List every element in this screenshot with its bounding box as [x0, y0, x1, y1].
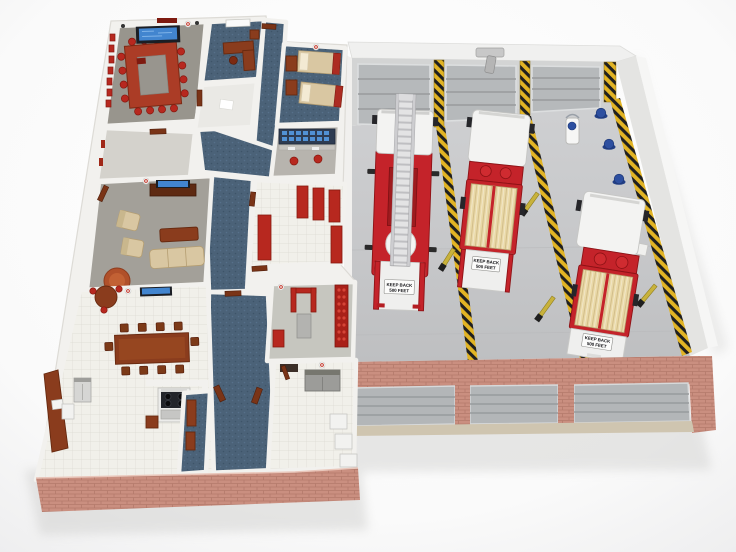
- door: [252, 265, 267, 271]
- hazard-post: [520, 61, 530, 118]
- weight-bench: [297, 314, 311, 338]
- mirror: [433, 117, 438, 126]
- bed: [299, 82, 343, 107]
- keep-back-sign: KEEP BACK 500 FEET: [384, 279, 414, 294]
- kitchen-tv: [140, 286, 172, 296]
- mirror: [466, 117, 472, 127]
- pillow: [301, 84, 311, 102]
- keyboard: [288, 147, 295, 150]
- conference-tv: [136, 25, 181, 44]
- recliner: [121, 237, 145, 257]
- dishwasher: [62, 404, 74, 419]
- rear-red-trim: [418, 263, 425, 311]
- rear-red-trim: [374, 261, 381, 309]
- wall-plaque: [157, 18, 177, 23]
- cabinet: [250, 30, 259, 39]
- truck-cab: [576, 191, 646, 256]
- locker-bank: [258, 215, 271, 260]
- front-garage-door-1: [352, 386, 455, 426]
- rear-garage-door-3: [532, 66, 600, 112]
- office-chair: [229, 56, 238, 65]
- office: [202, 19, 264, 83]
- appliance: [340, 454, 357, 467]
- dryer: [335, 434, 352, 449]
- locker-room: [249, 180, 345, 271]
- laundry-room: [268, 360, 357, 471]
- utility-cabinet: [305, 370, 340, 391]
- door: [150, 129, 166, 135]
- kitchen-wall: [146, 380, 208, 386]
- dumbbell-rack: [335, 285, 348, 347]
- facade-brick-pillar: [455, 384, 470, 425]
- paper: [219, 99, 233, 110]
- coffee-table: [160, 227, 199, 242]
- locker-bank: [297, 186, 308, 218]
- cabinet: [186, 432, 195, 450]
- sign-line-2: 500 FEET: [389, 288, 409, 294]
- scene-svg: KEEP BACK 500 FEET KEEP BA: [0, 0, 736, 552]
- smoke-detector: [185, 21, 191, 27]
- sitting-room-floor: [97, 128, 195, 181]
- door: [197, 90, 202, 106]
- bay-front-facade: [350, 356, 716, 436]
- dispatch-console: [279, 129, 335, 150]
- gurney-cart: [566, 115, 579, 145]
- red-cabinet: [273, 330, 284, 347]
- dispatch-chair: [314, 155, 322, 163]
- tail-light: [377, 303, 385, 307]
- hazard-post: [434, 60, 444, 127]
- facade-brick-corner: [688, 356, 716, 433]
- smoke-detector: [319, 362, 325, 368]
- bunk-room: [277, 44, 345, 125]
- dresser: [286, 56, 297, 71]
- tail-light: [413, 304, 421, 308]
- hazard-post: [604, 62, 616, 102]
- bed: [297, 51, 340, 75]
- sofa: [149, 246, 204, 269]
- locker-bank: [329, 190, 340, 222]
- lounge: [86, 176, 212, 298]
- wall-art: [99, 158, 103, 166]
- smoke-detector: [278, 284, 284, 290]
- mirror: [529, 123, 535, 133]
- footboard: [332, 53, 340, 74]
- mirror: [372, 115, 377, 124]
- speaker: [121, 24, 125, 28]
- washer: [330, 414, 347, 429]
- door: [262, 24, 276, 30]
- fire-station-render: KEEP BACK 500 FEET KEEP BA: [0, 0, 736, 552]
- door: [249, 192, 255, 206]
- facade-brick-pillar: [558, 383, 574, 424]
- bench: [187, 400, 196, 426]
- gym: [267, 282, 355, 361]
- window: [226, 19, 250, 27]
- smoke-detector: [313, 44, 319, 50]
- tv-cabinet: [150, 180, 196, 196]
- round-table: [95, 286, 117, 308]
- front-garage-door-2: [470, 385, 558, 424]
- sitting-room: [97, 128, 195, 181]
- fridge: [74, 378, 91, 402]
- locker-bank: [313, 188, 324, 220]
- front-garage-door-3: [574, 383, 690, 423]
- door: [225, 291, 241, 297]
- dispatch-room: [271, 125, 340, 178]
- smoke-detector: [143, 178, 149, 184]
- conference-room: [105, 18, 206, 126]
- smoke-detector: [125, 288, 131, 294]
- locker-bank: [331, 226, 342, 263]
- console-desk: [279, 145, 335, 150]
- speaker: [195, 21, 199, 25]
- dresser: [286, 80, 297, 95]
- storage-room: [195, 81, 257, 130]
- pillow: [299, 53, 308, 71]
- projector: [136, 58, 145, 65]
- keyboard: [312, 147, 319, 150]
- wall-art: [101, 140, 105, 148]
- keep-back-sign: KEEP BACK 500 FEET: [471, 256, 500, 272]
- dispatch-chair: [290, 157, 298, 165]
- counter: [146, 416, 158, 428]
